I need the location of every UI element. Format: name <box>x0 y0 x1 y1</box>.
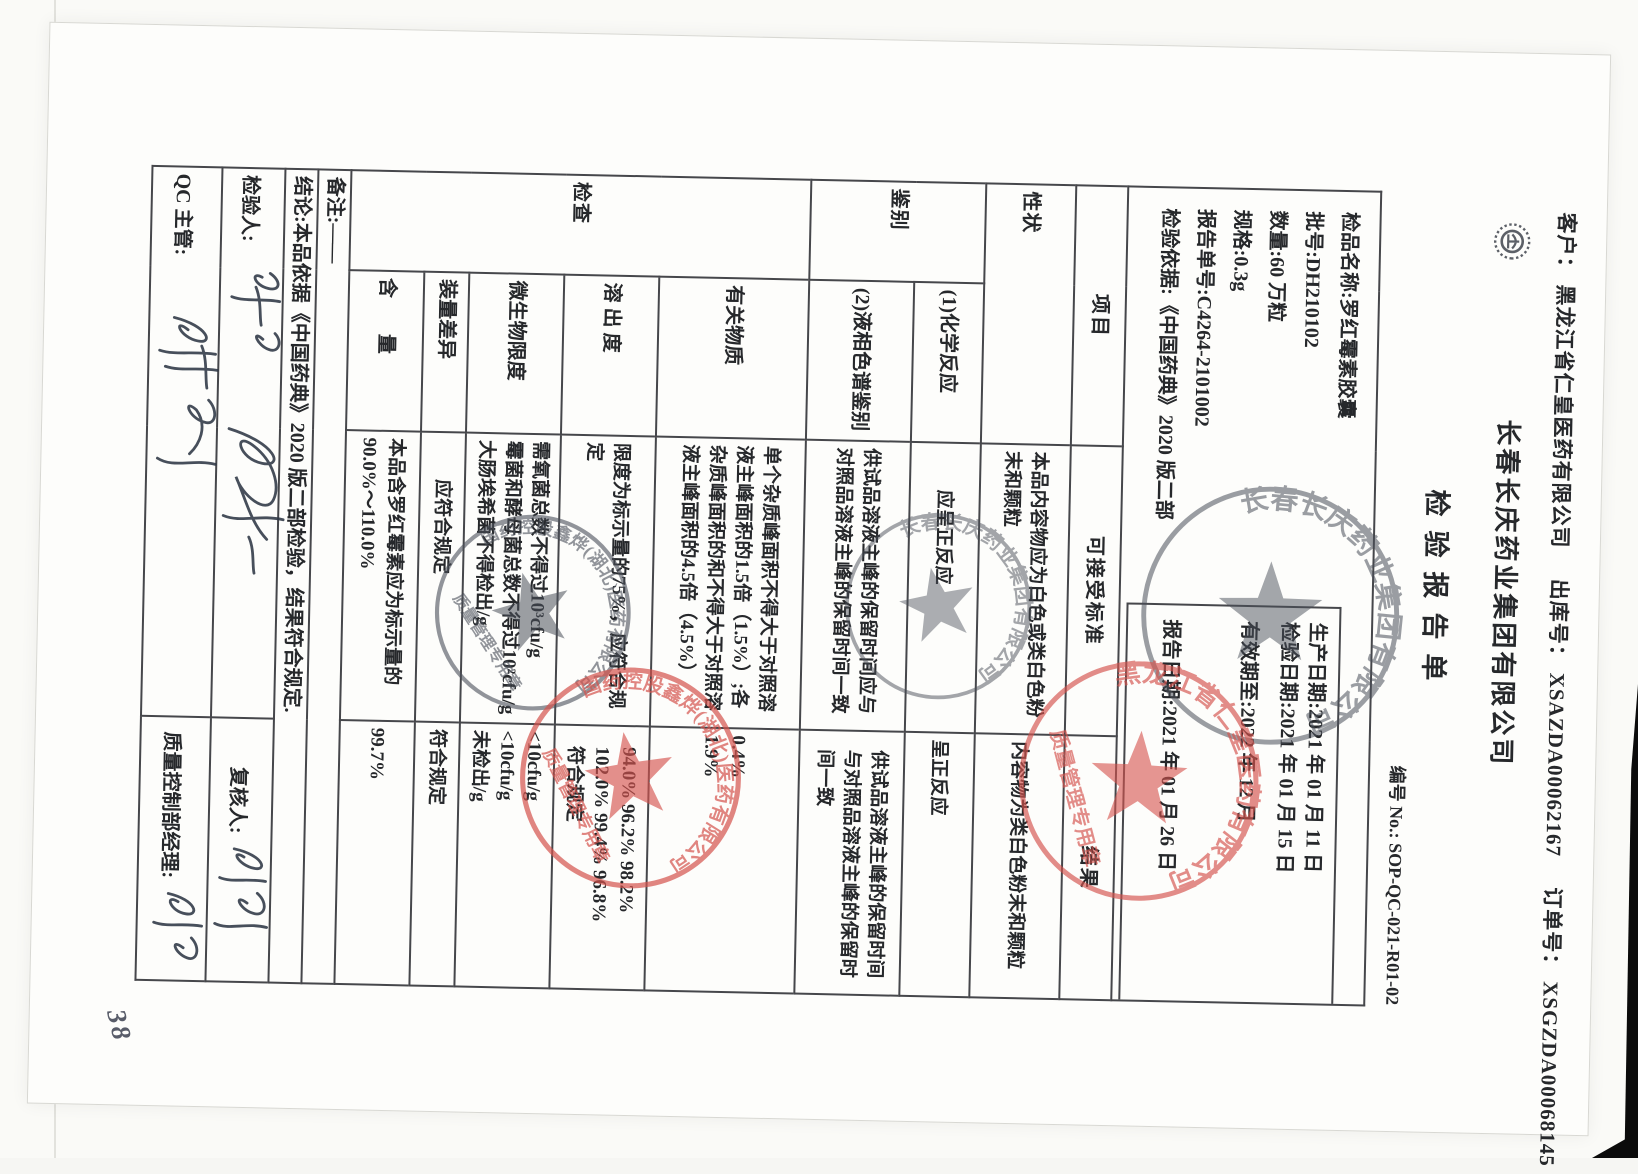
identification-label: 鉴别 <box>809 180 986 284</box>
qc-manager-signature <box>140 885 212 986</box>
identification-1-name: (1)化学反应 <box>911 282 984 443</box>
customer-line: 客户：黑龙江省仁皇医药有限公司 出库号：XSAZDA00062167 订单号：X… <box>1533 212 1583 1173</box>
reviewer-signature <box>198 836 280 958</box>
related-substances-name: 有关物质 <box>656 277 809 440</box>
row-microbial-limit: 微生物限度 需氧菌总数不得过10³cfu/g 霉菌和酵母菌总数不得过10²cfu… <box>454 173 566 989</box>
identification-2-standard: 供试品溶液主峰的保留时间应与对照品溶液主峰的保留时间一致 <box>800 440 911 732</box>
inspection-table: 检品名称:罗红霉素胶囊 批号:DH210102 数量:60 万粒 规格:0.3g… <box>134 165 1382 1007</box>
specification: 规格:0.3g <box>1217 209 1260 521</box>
order-no: XSGZDA00068145 <box>1535 981 1563 1167</box>
qc-manager-label: 质量控制部经理: <box>155 731 185 878</box>
row-identification-2: (2)液相色谱鉴别 供试品溶液主峰的保留时间应与对照品溶液主峰的保留时间一致 供… <box>794 180 916 996</box>
dates-box: 生产日期:2021 年 01 月 11 日 检验日期:2021 年 01 月 1… <box>1118 602 1341 1003</box>
qc-supervisor-cell: QC 主管: <box>141 166 223 717</box>
report-title: 检验报告单 <box>1407 52 1469 1133</box>
inspector-label: 检验人: <box>235 175 263 242</box>
scanner-corner-artifact <box>1592 1132 1638 1158</box>
microbial-limit-standard: 需氧菌总数不得过10³cfu/g 霉菌和酵母菌总数不得过10²cfu/g 大肠埃… <box>460 433 561 725</box>
qc-manager-cell: 质量控制部经理: <box>135 716 211 981</box>
identification-2-name: (2)液相色谱鉴别 <box>806 280 914 442</box>
inspection-report-page: 客户：黑龙江省仁皇医药有限公司 出库号：XSAZDA00062167 订单号：X… <box>27 22 1611 1136</box>
inspector-cell: 检验人: <box>211 167 286 718</box>
sample-name: 检品名称:罗红霉素胶囊 <box>1325 212 1368 524</box>
related-substances-standard: 单个杂质峰面积不得大于对照溶液主峰面积的1.5倍（1.5%）;各杂质峰面积的和不… <box>650 437 806 730</box>
scanner-edge-artifact <box>1623 684 1638 1158</box>
col-header-item: 项目 <box>1071 185 1128 446</box>
scanner-background: 客户：黑龙江省仁皇医药有限公司 出库号：XSAZDA00062167 订单号：X… <box>0 0 1638 1158</box>
company-name: 长春长庆药业集团有限公司 <box>1477 53 1537 1134</box>
appearance-result: 内容物为类白色粉末和颗粒 <box>969 733 1065 999</box>
row-dissolution: 溶 出 度 限度为标示量的75%，应符合规定 94.0% 96.2% 98.2%… <box>549 175 661 991</box>
dissolution-name: 溶 出 度 <box>561 275 659 437</box>
quantity: 数量:60 万粒 <box>1253 210 1296 522</box>
sample-info-left: 检品名称:罗红霉素胶囊 批号:DH210102 数量:60 万粒 规格:0.3g… <box>1145 208 1367 524</box>
doc-number-value: SOP-QC-021-R01-02 <box>1382 843 1405 1005</box>
appearance-label: 性状 <box>981 183 1076 445</box>
customer-value: 黑龙江省仁皇医药有限公司 <box>1548 284 1578 548</box>
report-date: 报告日期:2021 年 01 月 26 日 <box>1149 619 1185 1001</box>
expiry-date: 有效期至:2022 年 12 月 <box>1227 621 1263 1003</box>
assay-name: 含 量 <box>346 270 424 432</box>
microbial-limit-result: <10cfu/g <10cfu/g 未检出/g <box>454 723 555 989</box>
qc-supervisor-label: QC 主管: <box>168 173 197 255</box>
doc-number-label: 编号 No.: <box>1386 765 1408 838</box>
inspection-label: 检查 <box>349 170 811 280</box>
doc-number: 编号 No.: SOP-QC-021-R01-02 <box>1380 765 1411 1005</box>
dissolution-result: 94.0% 96.2% 98.2% 102.0% 99.4% 96.8% 符合规… <box>549 725 650 991</box>
batch-no: 批号:DH210102 <box>1289 211 1332 523</box>
identification-1-standard: 应呈正反应 <box>905 442 981 733</box>
col-header-standard: 可接受标准 <box>1065 445 1123 736</box>
sample-info-block: 检品名称:罗红霉素胶囊 批号:DH210102 数量:60 万粒 规格:0.3g… <box>1111 186 1381 1005</box>
related-substances-result: 0.4% 1.9% <box>644 726 799 993</box>
col-header-result: 结果 <box>1059 735 1117 1000</box>
identification-2-result: 供试品溶液主峰的保留时间与对照品溶液主峰的保留时间一致 <box>794 730 905 996</box>
assay-standard: 本品含罗红霉素应为标示量的90.0%～110.0% <box>340 430 421 722</box>
assay-result: 99.7% <box>334 720 415 986</box>
report-no: 报告单号:C4264-2101002 <box>1181 209 1224 521</box>
reviewer-cell: 复核人: <box>205 717 274 982</box>
weight-variation-standard: 应符合规定 <box>415 432 466 723</box>
outbound-label: 出库号： <box>1545 578 1571 666</box>
weight-variation-name: 装量差异 <box>421 272 469 433</box>
appearance-standard: 本品内容物应为白色或类白色粉末和颗粒 <box>975 443 1071 735</box>
inspector-signature <box>214 256 290 378</box>
reviewer-label: 复核人: <box>223 767 251 834</box>
identification-1-result: 呈正反应 <box>899 732 975 997</box>
customer-label: 客户： <box>1553 212 1578 278</box>
dissolution-standard: 限度为标示量的75%，应符合规定 <box>555 435 656 727</box>
row-appearance: 性状 本品内容物应为白色或类白色粉末和颗粒 内容物为类白色粉末和颗粒 <box>969 183 1076 999</box>
weight-variation-result: 符合规定 <box>409 722 460 987</box>
row-related-substances: 检查 有关物质 单个杂质峰面积不得大于对照溶液主峰面积的1.5倍（1.5%）;各… <box>644 177 811 994</box>
microbial-limit-name: 微生物限度 <box>466 273 564 435</box>
outbound-no: XSAZDA00062167 <box>1541 672 1569 857</box>
handwritten-page-mark: 38 <box>100 1006 138 1045</box>
inspection-basis: 检验依据:《中国药典》2020 版二部 <box>1145 208 1188 520</box>
order-label: 订单号： <box>1539 887 1565 975</box>
